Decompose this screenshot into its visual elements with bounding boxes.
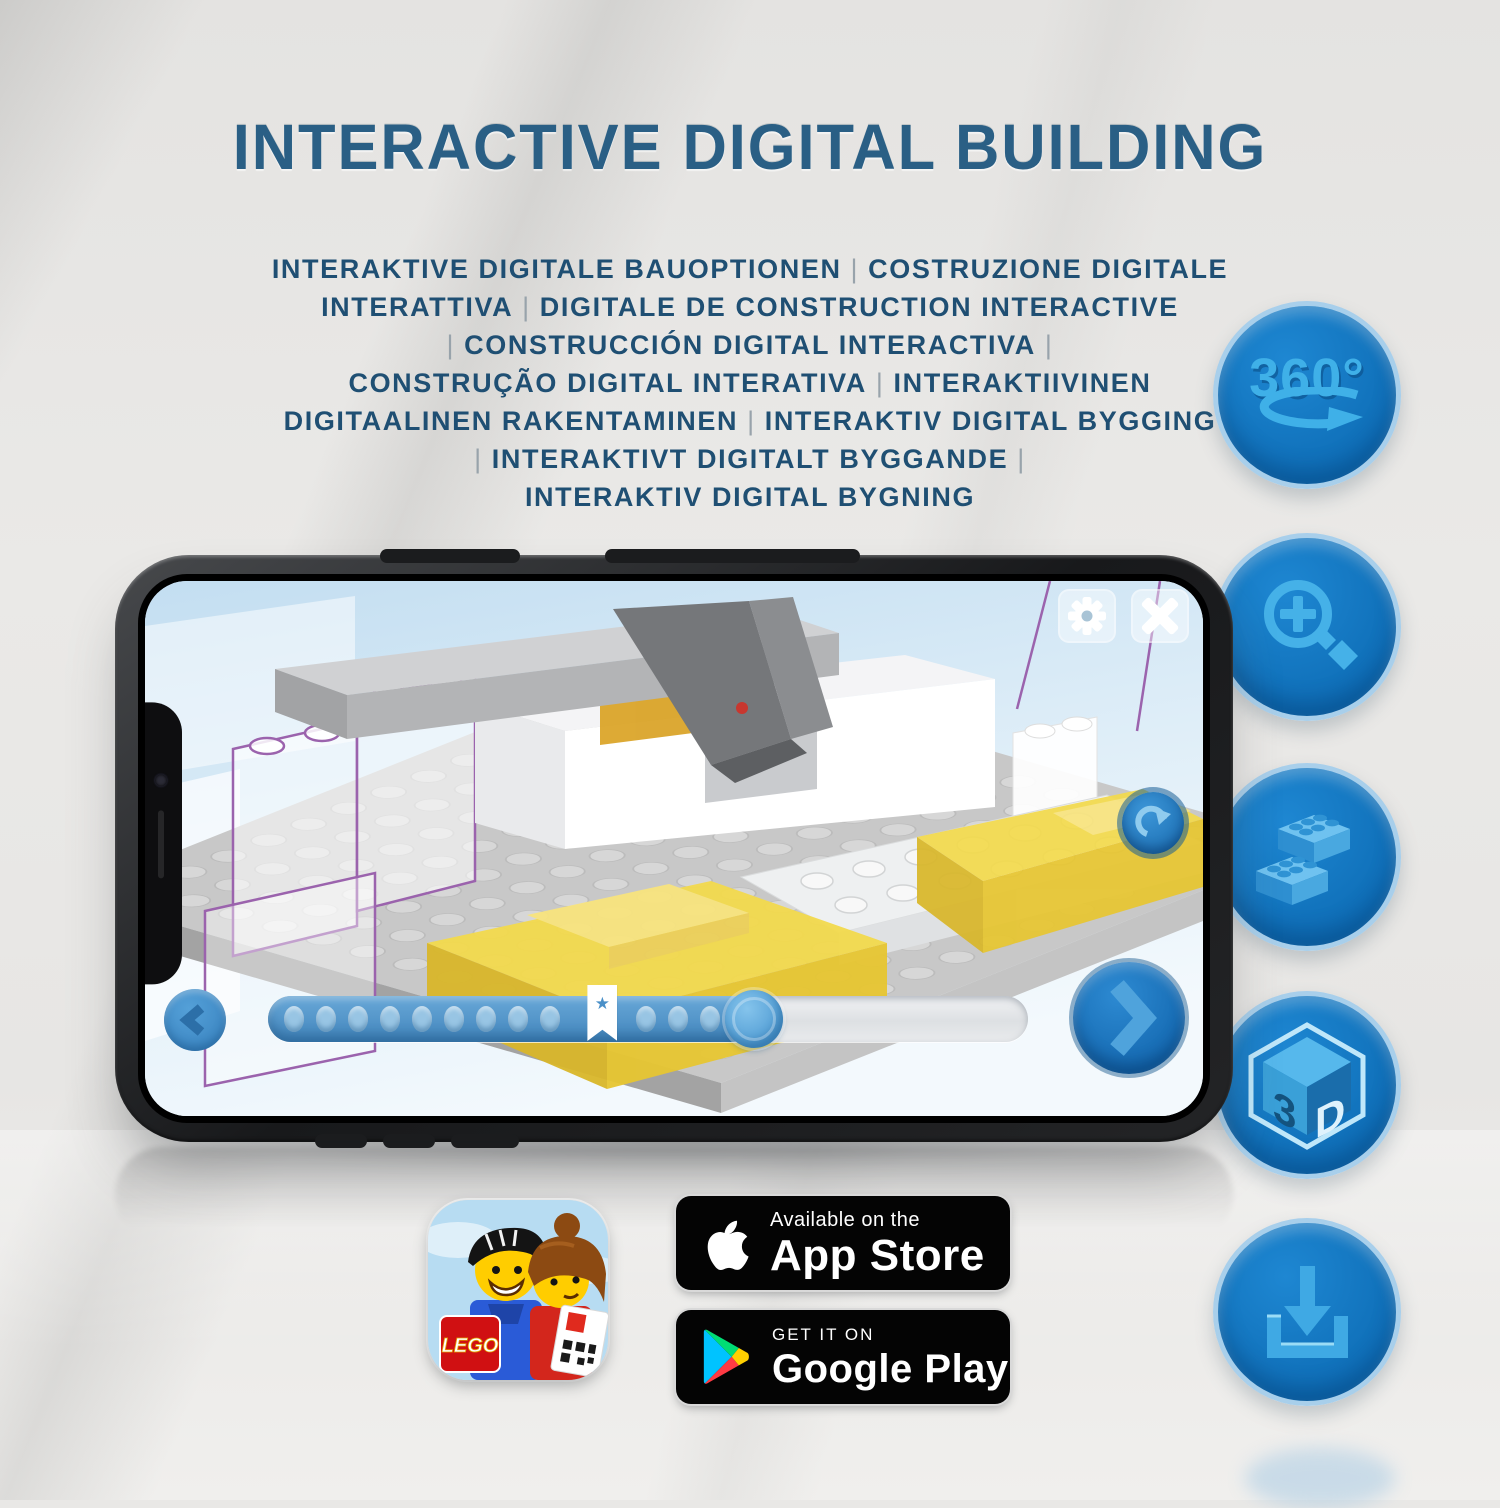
feature-3d-view: 3 D — [1213, 991, 1401, 1179]
power-button — [451, 1134, 519, 1148]
phone-screen: ★ — [145, 581, 1203, 1116]
google-play-badge[interactable]: GET IT ON Google Play — [676, 1310, 1010, 1404]
google-play-icon — [700, 1328, 752, 1386]
page-title: INTERACTIVE DIGITAL BUILDING — [30, 110, 1470, 184]
phone: ★ — [115, 555, 1233, 1142]
rotate-cw-icon — [1133, 803, 1173, 843]
progress-dot — [540, 1006, 560, 1032]
progress-dot — [348, 1006, 368, 1032]
close-icon — [1138, 594, 1182, 638]
side-button — [383, 1134, 435, 1148]
app-store-tagline: Available on the — [770, 1209, 985, 1232]
lego-app-icon[interactable]: LEGO — [428, 1200, 608, 1380]
volume-button — [380, 549, 520, 563]
progress-dot — [380, 1006, 400, 1032]
3d-cube-icon: 3 D — [1241, 1019, 1373, 1151]
google-play-tagline: GET IT ON — [772, 1325, 1009, 1345]
speaker-icon — [158, 810, 164, 878]
settings-button[interactable] — [1058, 589, 1116, 643]
next-step-button[interactable] — [1073, 962, 1185, 1074]
feature-download — [1213, 1218, 1401, 1406]
previous-step-button[interactable] — [164, 989, 226, 1051]
close-button[interactable] — [1131, 589, 1189, 643]
rotation-arrow-icon — [1239, 387, 1375, 435]
progress-slider-handle[interactable] — [725, 990, 783, 1048]
progress-dot — [636, 1006, 656, 1032]
gear-icon — [1067, 596, 1107, 636]
camera-icon — [155, 774, 167, 786]
phone-notch — [145, 702, 182, 984]
google-play-name: Google Play — [772, 1349, 1009, 1389]
phone-reflection — [115, 1147, 1233, 1242]
side-button — [315, 1134, 367, 1148]
chevron-left-icon — [175, 1000, 215, 1040]
lego-brick-icon — [1244, 799, 1370, 915]
progress-dot — [700, 1006, 720, 1032]
side-button — [605, 549, 860, 563]
app-store-name: App Store — [770, 1234, 985, 1278]
circle-reflection — [1245, 1448, 1395, 1508]
progress-dot — [316, 1006, 336, 1032]
svg-text:LEGO: LEGO — [442, 1335, 499, 1357]
progress-dot — [444, 1006, 464, 1032]
progress-dot — [284, 1006, 304, 1032]
subtitle: INTERAKTIVE DIGITALE BAUOPTIONEN|COSTRUZ… — [250, 250, 1250, 516]
lego-app-icon-art: LEGO — [428, 1200, 608, 1380]
feature-brick — [1213, 763, 1401, 951]
progress-dot — [508, 1006, 528, 1032]
feature-360-rotation: 360° — [1213, 301, 1401, 489]
apple-icon — [700, 1213, 750, 1273]
progress-dot — [668, 1006, 688, 1032]
rotate-model-button[interactable] — [1122, 792, 1184, 854]
app-store-badge[interactable]: Available on the App Store — [676, 1196, 1010, 1290]
chevron-right-icon — [1073, 962, 1185, 1074]
progress-dot — [412, 1006, 432, 1032]
progress-fill — [268, 996, 754, 1042]
red-detail — [736, 702, 748, 714]
download-icon — [1249, 1254, 1365, 1370]
build-progress-slider[interactable] — [268, 996, 1028, 1042]
progress-dot — [476, 1006, 496, 1032]
lego-logo: LEGO — [440, 1316, 500, 1372]
feature-zoom — [1213, 533, 1401, 721]
zoom-in-magnifier-icon — [1252, 572, 1362, 682]
